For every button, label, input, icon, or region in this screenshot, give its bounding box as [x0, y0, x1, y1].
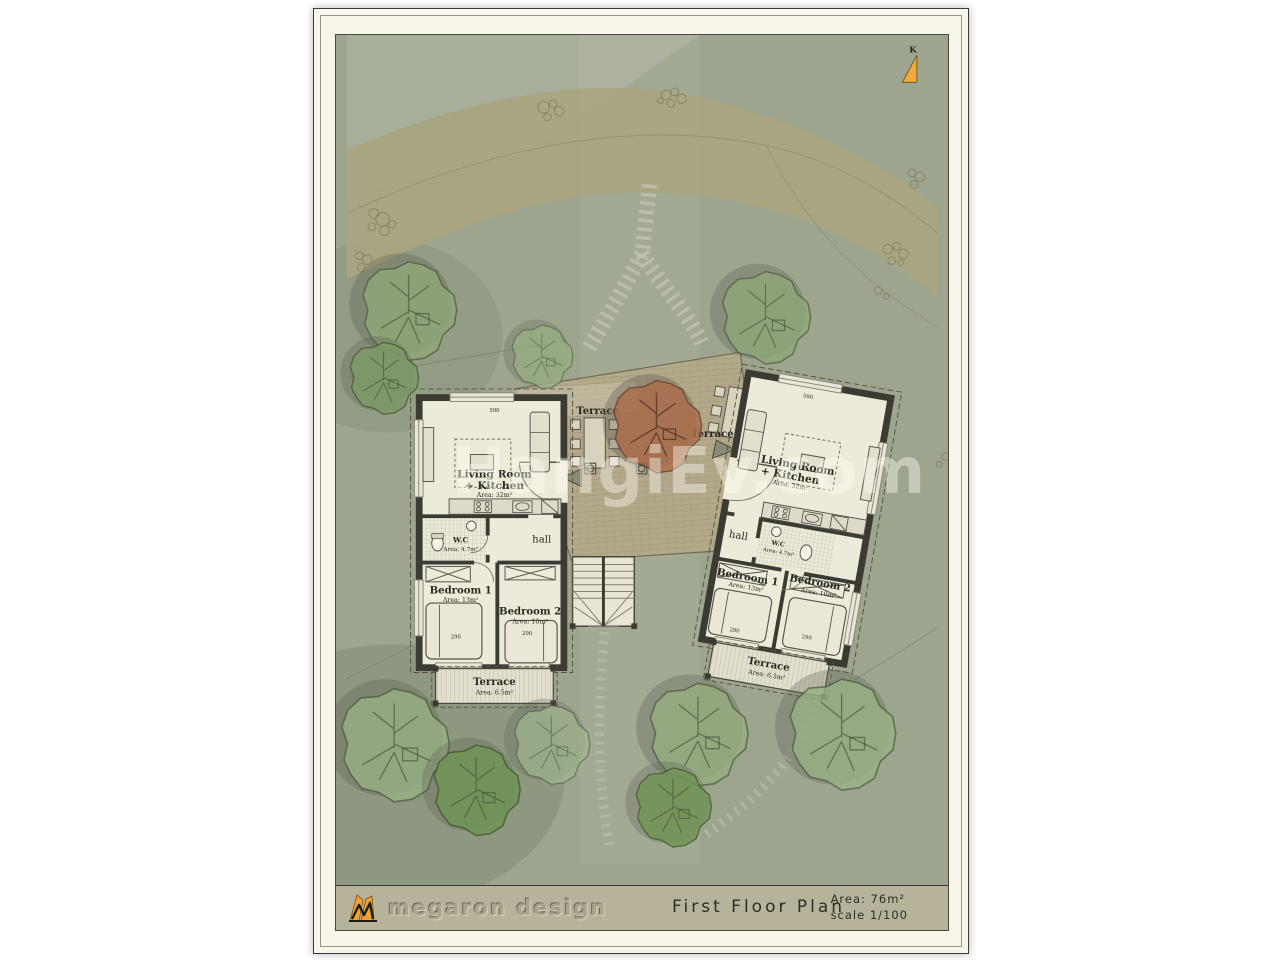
left-wc-label: W.C: [452, 535, 468, 544]
left-hall-label: hall: [532, 534, 551, 545]
plan-scale: scale 1/100: [831, 907, 908, 923]
left-living-label2: + Kitchen: [465, 480, 525, 492]
exterior-stair: [570, 557, 638, 629]
drawing-sheet: Terrace Terrace: [313, 8, 969, 954]
left-bedroom2-area: Area: 10m²: [511, 618, 548, 625]
tree: [503, 320, 572, 389]
tree: [710, 264, 811, 364]
north-label: K: [909, 45, 917, 55]
page: Terrace Terrace: [0, 0, 1280, 960]
brand-text: megaron design: [388, 896, 607, 920]
left-wc-area: Area: 4.7m²: [442, 546, 478, 553]
left-terrace-area: Area: 6.5m²: [475, 690, 514, 697]
brand: megaron design: [346, 891, 607, 925]
left-bedroom1-label: Bedroom 1: [430, 584, 492, 596]
left-terrace-label: Terrace: [473, 676, 516, 688]
left-dim-top: 590: [489, 408, 500, 414]
title-block: megaron design First Floor Plan Area: 76…: [336, 885, 948, 930]
left-dim-bed2: 290: [522, 631, 533, 637]
north-arrow-icon: [902, 55, 916, 82]
site-plan-drawing: Terrace Terrace: [336, 35, 948, 930]
left-living-label: Living Room: [457, 469, 532, 481]
left-dim-bed1: 290: [451, 635, 462, 641]
tree: [775, 670, 896, 790]
plan-title: First Floor Plan: [672, 897, 845, 917]
plan-canvas: Terrace Terrace: [335, 34, 949, 931]
megaron-logo-icon: [346, 891, 380, 925]
plan-area: Area: 76m²: [831, 891, 908, 907]
left-bedroom1-area: Area: 13m²: [442, 597, 479, 604]
left-living-area: Area: 32m²: [476, 492, 513, 499]
north-arrow: K: [902, 45, 917, 82]
left-unit: Living Room + Kitchen Area: 32m² W.C Are…: [411, 389, 573, 707]
left-bedroom2-label: Bedroom 2: [499, 606, 561, 618]
plan-meta: Area: 76m² scale 1/100: [831, 891, 908, 923]
